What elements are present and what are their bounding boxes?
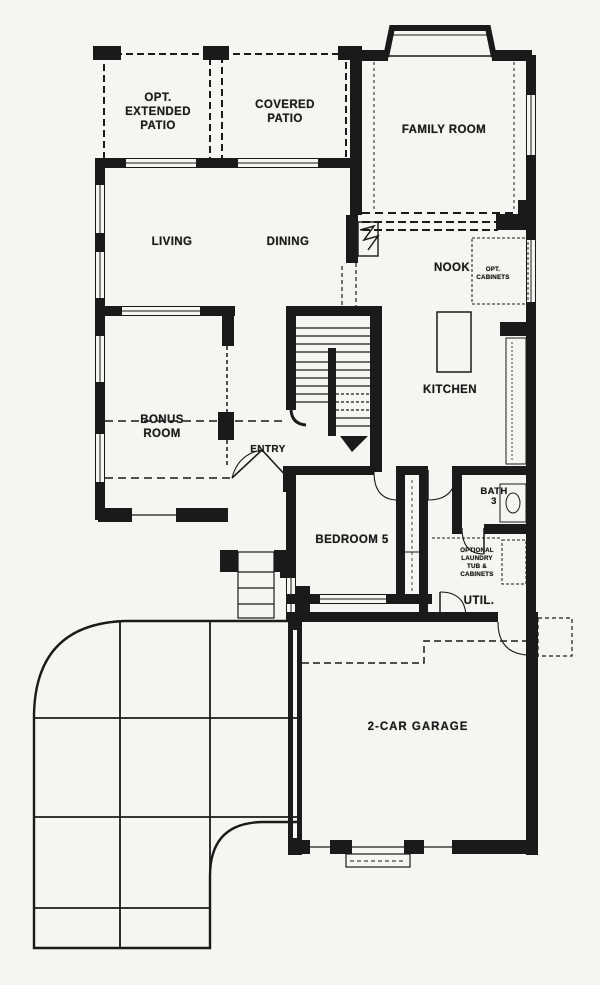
overhang-dashed-line — [302, 641, 526, 663]
wall — [286, 612, 498, 622]
wall-post — [280, 556, 296, 578]
fireplace-wall — [346, 215, 358, 263]
kitchen-counter — [506, 338, 526, 464]
wall-channel — [293, 630, 297, 838]
bay-window-wall — [386, 28, 494, 57]
label-util: UTIL. — [464, 594, 495, 608]
bedroom-door-arc — [374, 472, 398, 500]
label-bonus-room: BONUS ROOM — [140, 413, 184, 441]
wall — [222, 306, 234, 346]
wall — [452, 840, 538, 854]
living-dining — [95, 158, 378, 313]
stair-stringer — [328, 348, 336, 436]
wall — [98, 508, 132, 522]
wall — [452, 466, 462, 530]
label-laundry-note: OPTIONAL LAUNDRY TUB & CABINETS — [460, 547, 494, 579]
label-family-room: FAMILY ROOM — [402, 123, 486, 137]
floor-plan-linework — [0, 0, 600, 985]
understair-door — [340, 436, 368, 452]
wall — [452, 524, 462, 534]
label-nook: NOOK — [434, 261, 470, 275]
floor-plan: OPT. EXTENDED PATIO COVERED PATIO FAMILY… — [0, 0, 600, 985]
label-living: LIVING — [152, 235, 193, 249]
label-entry: ENTRY — [250, 444, 286, 456]
label-garage: 2-CAR GARAGE — [368, 720, 469, 734]
wall — [176, 508, 228, 522]
kitchen-island — [437, 312, 471, 372]
wall — [286, 306, 382, 316]
driveway-outline — [34, 621, 300, 948]
staircase — [286, 306, 382, 452]
wall — [286, 466, 374, 475]
laundry-tub-outline — [502, 540, 526, 584]
garage — [288, 612, 572, 867]
wall — [330, 840, 352, 854]
label-bedroom5: BEDROOM 5 — [315, 533, 388, 547]
wall — [370, 312, 382, 472]
wall-post — [218, 412, 234, 440]
hall-door-arc — [428, 472, 456, 500]
label-opt-cabinets: OPT. CABINETS — [476, 266, 509, 282]
bath-sink-icon — [506, 493, 520, 513]
label-kitchen: KITCHEN — [423, 383, 477, 397]
wall — [286, 306, 296, 410]
stair-rail-curve — [291, 410, 306, 425]
label-bath3: BATH 3 — [480, 487, 507, 507]
wall — [526, 612, 538, 855]
porch-steps — [238, 552, 274, 618]
nook-kitchen — [362, 214, 536, 472]
wall — [404, 840, 424, 854]
wall — [288, 840, 310, 854]
closet-wall — [396, 475, 405, 600]
side-stoop-outline — [538, 618, 572, 656]
label-opt-extended-patio: OPT. EXTENDED PATIO — [125, 91, 191, 133]
porch-post — [220, 550, 238, 572]
wall — [456, 466, 536, 475]
driveway — [34, 621, 300, 948]
wall — [484, 524, 536, 534]
wall — [526, 472, 536, 620]
label-dining: DINING — [267, 235, 310, 249]
driveway-grid — [34, 621, 298, 948]
bay-window-line — [388, 35, 492, 52]
wall — [526, 330, 536, 472]
label-covered-patio: COVERED PATIO — [255, 98, 315, 126]
wall — [350, 55, 362, 215]
closet-wall — [419, 466, 428, 620]
